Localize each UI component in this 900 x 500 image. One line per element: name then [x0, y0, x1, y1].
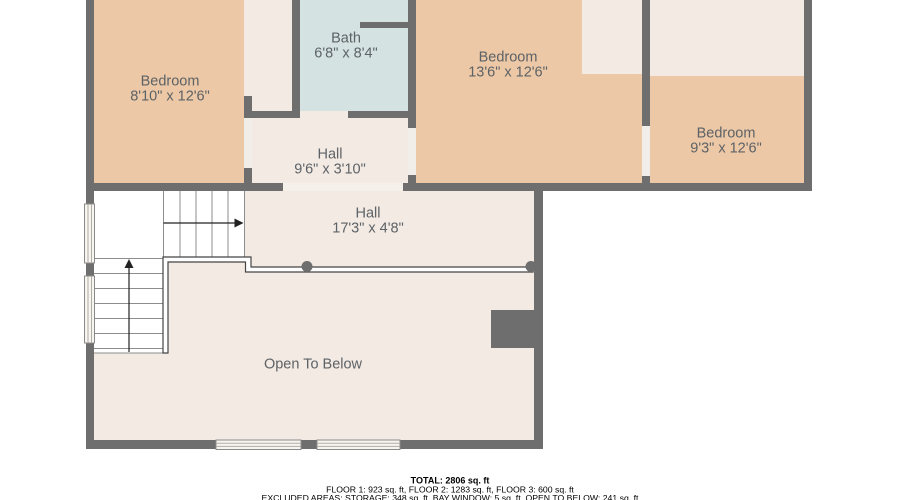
svg-text:Hall: Hall: [318, 147, 343, 163]
svg-text:EXCLUDED AREAS: STORAGE: 348 s: EXCLUDED AREAS: STORAGE: 348 sq. ft, BAY…: [262, 493, 639, 500]
svg-text:17'3" x 4'8": 17'3" x 4'8": [332, 221, 403, 237]
svg-text:Bedroom: Bedroom: [697, 126, 756, 142]
svg-text:Hall: Hall: [356, 206, 381, 222]
svg-text:9'3" x 12'6": 9'3" x 12'6": [690, 141, 761, 157]
svg-text:Bath: Bath: [331, 31, 361, 47]
svg-text:13'6" x 12'6": 13'6" x 12'6": [468, 65, 548, 81]
svg-text:Bedroom: Bedroom: [141, 74, 200, 90]
svg-text:6'8" x 8'4": 6'8" x 8'4": [314, 46, 377, 62]
svg-text:Open To Below: Open To Below: [264, 357, 363, 373]
svg-text:8'10" x 12'6": 8'10" x 12'6": [130, 89, 210, 105]
svg-text:Bedroom: Bedroom: [479, 50, 538, 66]
svg-text:9'6" x 3'10": 9'6" x 3'10": [294, 162, 365, 178]
